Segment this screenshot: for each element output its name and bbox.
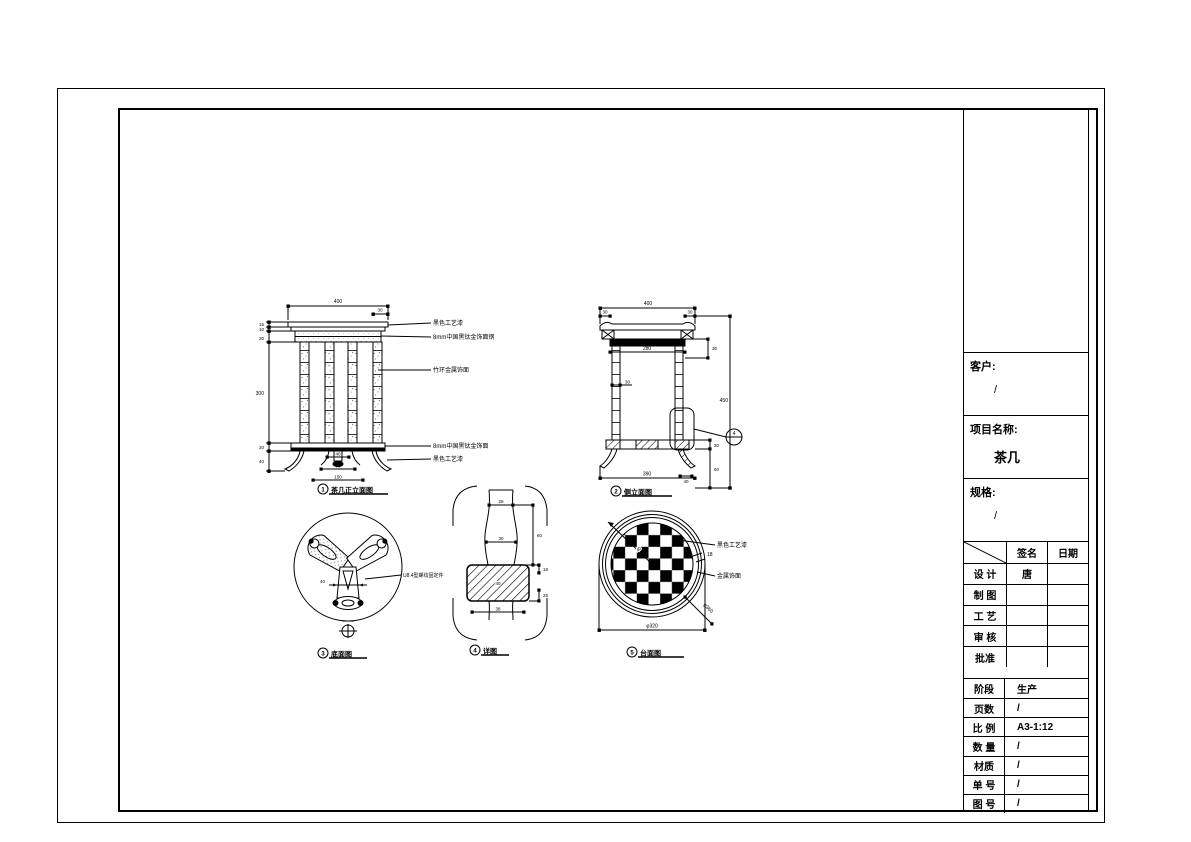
sig-header-date: 日期 — [1047, 542, 1088, 563]
dim-label: 25 — [543, 593, 549, 598]
annotation: 8mm中国黑钛金饰面 — [433, 442, 488, 450]
dim-label: 300 — [256, 391, 265, 397]
detail-drawing: 28 30 60 18 25 40 38 4 详图 — [445, 480, 567, 662]
right-foot — [372, 451, 391, 471]
view-caption: 茶几正立面图 — [330, 486, 373, 495]
tabletop-molding — [291, 327, 385, 331]
break-line — [525, 486, 547, 526]
dim-label: 400 — [334, 299, 343, 305]
dim-label: 30 — [687, 310, 693, 315]
detail-ref-number: 4 — [733, 431, 736, 437]
sig-row-date — [1047, 563, 1088, 584]
view-number: 3 — [321, 652, 325, 658]
dim-label: 40 — [683, 479, 689, 484]
sig-row-label: 工 艺 — [964, 605, 1006, 626]
dim-label: φ320 — [646, 624, 658, 630]
sig-row-date — [1047, 625, 1088, 646]
dim-label: 450 — [720, 398, 729, 404]
annotation: 8mm中国黑钛金饰面钢 — [433, 333, 494, 341]
prod-row-value: / — [1004, 775, 1088, 794]
prod-row-label: 图 号 — [964, 794, 1004, 813]
spec-label: 规格: — [964, 479, 1088, 500]
diagonal-line — [964, 542, 1006, 563]
annotation: 黑色工艺漆 — [717, 541, 747, 549]
dim-label: 40 — [259, 459, 265, 464]
sig-row-label: 审 核 — [964, 625, 1006, 646]
dim-label: 280 — [643, 346, 652, 352]
annotation: 黑色工艺漆 — [433, 455, 463, 463]
sig-row-sign: 唐 — [1006, 563, 1047, 584]
annotation: 黑色工艺漆 — [433, 319, 463, 327]
prod-row-value: A3-1:12 — [1004, 717, 1088, 736]
sig-row-date — [1047, 605, 1088, 626]
project-section: 项目名称: 茶几 — [964, 415, 1088, 478]
dim-label: 390 — [643, 472, 652, 478]
leg-column — [325, 342, 334, 443]
title-block: 客户: / 项目名称: 茶几 规格: / 签名 日期 设 计 唐 制 图 工 艺… — [963, 108, 1089, 812]
prod-row-label: 比 例 — [964, 717, 1004, 736]
prod-row-value: / — [1004, 736, 1088, 755]
dim-label: 30 — [712, 346, 718, 351]
dim-label: 60 — [714, 467, 720, 472]
sig-row-sign — [1006, 646, 1047, 667]
title-block-logo-area — [964, 108, 1088, 352]
prod-row-label: 阶段 — [964, 679, 1004, 698]
customer-label: 客户: — [964, 353, 1088, 374]
right-foot — [678, 449, 695, 468]
prod-row-label: 单 号 — [964, 775, 1004, 794]
leg-column — [300, 342, 309, 443]
prod-row-label: 页数 — [964, 698, 1004, 717]
leg-arm — [337, 567, 359, 598]
dim-label: 38 — [495, 607, 501, 612]
sig-row-sign — [1006, 605, 1047, 626]
view-number: 1 — [321, 488, 325, 494]
annotation: U8.4型螺纹固定件 — [403, 572, 444, 579]
dim-label: 400 — [644, 301, 653, 307]
leg-profile — [513, 490, 518, 565]
front-elevation-drawing: 400 30 15 10 20 300 20 40 40 70 150 黑色工艺… — [255, 290, 517, 502]
dim-label: 10 — [259, 327, 265, 332]
view-number: 2 — [614, 490, 618, 496]
side-elevation-drawing: 400 30 30 280 30 30 450 30 60 40 390 4 2… — [580, 290, 766, 512]
prod-row-label: 材质 — [964, 756, 1004, 775]
dim-label: 20 — [259, 445, 265, 450]
dim-label: 60 — [537, 533, 543, 538]
leg-profile — [485, 490, 490, 565]
dim-label: 40 — [335, 452, 341, 457]
view-number: 4 — [473, 649, 477, 655]
sig-header-corner — [964, 542, 1006, 563]
top-view-drawing: 40 18 φ360 φ320 黑色工艺漆 金属饰面 5 台面图 — [590, 500, 766, 666]
view-caption: 侧立面图 — [624, 488, 652, 497]
leg-column — [373, 342, 382, 443]
customer-value: / — [964, 374, 1088, 396]
annotation: 金属饰面 — [717, 572, 741, 580]
sig-row-date — [1047, 646, 1088, 667]
dim-label: 30 — [714, 443, 720, 448]
sig-row-label: 制 图 — [964, 584, 1006, 605]
sig-row-sign — [1006, 625, 1047, 646]
prod-row-label: 数 量 — [964, 736, 1004, 755]
inner-foot — [352, 451, 360, 465]
prod-row-value: / — [1004, 794, 1088, 813]
prod-row-value: 生产 — [1004, 679, 1088, 698]
break-line — [453, 598, 477, 640]
dim-label: φ360 — [702, 602, 715, 615]
project-value: 茶几 — [964, 437, 1088, 466]
dim-label: 70 — [335, 464, 341, 469]
break-line — [453, 486, 477, 526]
left-foot — [285, 451, 304, 471]
dim-label: 20 — [259, 336, 265, 341]
prod-row-value: / — [1004, 756, 1088, 775]
leg-column — [612, 346, 620, 440]
apron-band — [610, 339, 685, 346]
dim-label: 30 — [625, 380, 631, 385]
tabletop-cornice — [288, 322, 388, 327]
view-caption: 底面图 — [331, 650, 352, 659]
leg-column — [348, 342, 357, 443]
signature-table: 签名 日期 设 计 唐 制 图 工 艺 审 核 批准 — [964, 541, 1088, 666]
dim-label: 40 — [320, 579, 326, 584]
spec-value: / — [964, 500, 1088, 522]
customer-section: 客户: / — [964, 352, 1088, 415]
bottom-view-drawing: 40 U8.4型螺纹固定件 3 底面图 — [285, 505, 461, 665]
project-label: 项目名称: — [964, 416, 1088, 437]
left-foot — [600, 449, 617, 468]
dim-label: 28 — [498, 499, 504, 504]
dim-label: 30 — [377, 308, 383, 313]
dim-label: 18 — [543, 567, 549, 572]
sig-header-sign: 签名 — [1006, 542, 1047, 563]
prod-row-value: / — [1004, 698, 1088, 717]
sig-row-label: 设 计 — [964, 563, 1006, 584]
tabletop-cornice — [600, 322, 695, 330]
dim-label: 30 — [602, 310, 608, 315]
view-caption: 台面图 — [640, 649, 661, 658]
view-number: 5 — [630, 651, 634, 657]
production-table: 阶段 生产 页数 / 比 例 A3-1:12 数 量 / 材质 / 单 号 / … — [964, 678, 1088, 812]
sig-row-sign — [1006, 584, 1047, 605]
dim-label: 30 — [498, 536, 504, 541]
annotation: 竹环金属饰面 — [433, 366, 469, 374]
spec-section: 规格: / — [964, 478, 1088, 541]
dim-label: 18 — [707, 552, 713, 558]
break-line — [525, 598, 547, 640]
leg-column — [675, 346, 683, 440]
dim-label: 40 — [495, 581, 501, 586]
view-caption: 详图 — [483, 647, 497, 656]
sig-row-label: 批准 — [964, 646, 1006, 667]
dim-label: 150 — [334, 475, 342, 480]
title-block-gap — [964, 666, 1088, 678]
sig-row-date — [1047, 584, 1088, 605]
